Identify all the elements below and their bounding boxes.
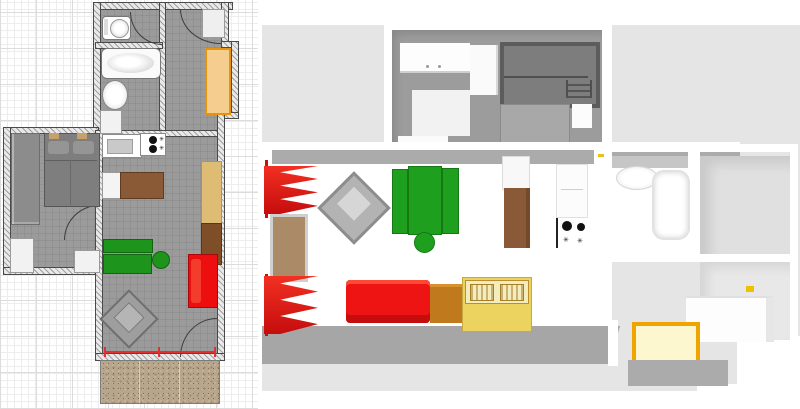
bath-cabinet[interactable] bbox=[100, 110, 122, 134]
dining-table-green-3d[interactable] bbox=[408, 166, 442, 235]
sofa-seat bbox=[191, 259, 201, 303]
terrace-joint-1 bbox=[139, 361, 140, 403]
burner-3d-1 bbox=[562, 221, 572, 231]
sofa-red-3d[interactable] bbox=[346, 280, 430, 323]
dining-table-green[interactable] bbox=[103, 254, 152, 274]
hall-cabinet[interactable] bbox=[202, 9, 225, 38]
bench-green[interactable] bbox=[103, 239, 153, 253]
wall-niche-right[interactable] bbox=[232, 42, 238, 118]
games-table-panel-right bbox=[500, 284, 524, 301]
terrace-joint-2 bbox=[179, 361, 180, 403]
games-table-yellow[interactable] bbox=[462, 277, 532, 332]
burner-1 bbox=[149, 136, 157, 144]
bedroom-wall-right-3d bbox=[602, 22, 612, 154]
sink-basin bbox=[107, 139, 133, 154]
knob-3d-1: ✳ bbox=[563, 237, 569, 243]
nightstand-3d[interactable] bbox=[572, 104, 592, 128]
bathroom-back-shadow bbox=[612, 156, 692, 168]
white-column-cabinet[interactable] bbox=[470, 45, 498, 95]
view-3d-panel[interactable]: ✳ ✳ bbox=[258, 0, 800, 409]
games-table-panel-left bbox=[470, 284, 494, 301]
right-rooms-wall-top bbox=[608, 144, 796, 152]
pillow-right bbox=[73, 141, 94, 154]
balcony-door[interactable] bbox=[270, 214, 308, 282]
bathtub-3d[interactable] bbox=[652, 170, 690, 240]
white-floor-mat bbox=[412, 90, 470, 136]
toilet-bowl bbox=[110, 19, 129, 38]
wardrobe-handle-2 bbox=[438, 65, 441, 68]
bench-green-3d-right[interactable] bbox=[442, 168, 459, 234]
wardrobe-handle-1 bbox=[426, 65, 429, 68]
burner-3d-2 bbox=[577, 223, 585, 231]
fridge-split-line bbox=[561, 189, 583, 190]
bathtub[interactable] bbox=[101, 48, 161, 79]
cooktop-3d[interactable]: ✳ ✳ bbox=[556, 218, 588, 248]
bench-green-3d-left[interactable] bbox=[392, 169, 408, 234]
terrace-window[interactable] bbox=[104, 351, 216, 353]
window-tick-right bbox=[214, 347, 216, 357]
bedroom-desk[interactable] bbox=[10, 238, 34, 273]
kitchen-upper-cabinet[interactable] bbox=[502, 156, 530, 190]
kitchen-counter-white[interactable] bbox=[102, 172, 122, 199]
blanket-line bbox=[45, 160, 97, 161]
right-room-wall-left bbox=[692, 144, 700, 262]
games-table-top bbox=[465, 280, 529, 304]
right-room-wall-right bbox=[790, 144, 798, 340]
burner-2 bbox=[149, 145, 157, 153]
chest-brown-3d[interactable] bbox=[430, 284, 464, 323]
pillow-left bbox=[48, 141, 69, 154]
window-tick-mid bbox=[158, 347, 160, 357]
hall-wardrobe[interactable] bbox=[205, 48, 231, 115]
knob-2: ✳ bbox=[159, 146, 164, 152]
app-window: ✳ ✳ bbox=[0, 0, 800, 409]
bunk-rail bbox=[504, 76, 588, 78]
toilet-tank bbox=[104, 19, 108, 35]
bunk-bed[interactable] bbox=[500, 42, 600, 108]
kitchen-table-brown-3d[interactable] bbox=[504, 188, 530, 248]
white-wardrobe[interactable] bbox=[400, 43, 470, 73]
right-room-upper-floor bbox=[700, 156, 790, 256]
yellow-wall-mark bbox=[746, 286, 754, 292]
knob-3d-2: ✳ bbox=[577, 238, 583, 244]
bed-post-left bbox=[49, 133, 59, 139]
bathtub-basin bbox=[107, 53, 154, 73]
stool-green-3d[interactable] bbox=[414, 232, 435, 253]
bedroom-wall-top-3d bbox=[386, 22, 608, 30]
plan-2d-panel[interactable]: ✳ ✳ bbox=[0, 0, 258, 409]
bedroom-wardrobe[interactable] bbox=[11, 133, 40, 225]
entry-wall-white bbox=[608, 320, 618, 366]
entry-floor-gray bbox=[628, 360, 728, 386]
double-bed[interactable] bbox=[44, 133, 100, 207]
bedroom-wall-left-3d bbox=[384, 22, 392, 154]
cooktop[interactable]: ✳ ✳ bbox=[140, 133, 166, 156]
bedroom-side-table[interactable] bbox=[74, 250, 100, 273]
tall-cabinet[interactable] bbox=[201, 161, 222, 224]
ground-cut-bottom bbox=[697, 384, 800, 409]
stool-green[interactable] bbox=[152, 251, 170, 269]
kitchen-sink[interactable] bbox=[102, 134, 142, 158]
mattress-split bbox=[70, 160, 71, 205]
terrace[interactable] bbox=[100, 360, 220, 404]
bath-wall-left-3d bbox=[604, 150, 612, 260]
bunk-ladder bbox=[566, 80, 592, 98]
bed-post-right bbox=[77, 133, 87, 139]
armchair-3d-cushion bbox=[337, 187, 371, 221]
toilet[interactable] bbox=[102, 16, 131, 40]
right-room-wall-mid bbox=[700, 254, 796, 262]
window-tick-left bbox=[104, 347, 106, 357]
sofa-red[interactable] bbox=[188, 254, 218, 308]
bath-wall-bottom-3d bbox=[612, 254, 696, 262]
fridge-3d[interactable] bbox=[556, 164, 588, 218]
washbasin[interactable] bbox=[102, 80, 128, 110]
kitchen-table[interactable] bbox=[120, 172, 164, 199]
armchair-cushion bbox=[113, 302, 144, 333]
knob-1: ✳ bbox=[159, 137, 164, 143]
